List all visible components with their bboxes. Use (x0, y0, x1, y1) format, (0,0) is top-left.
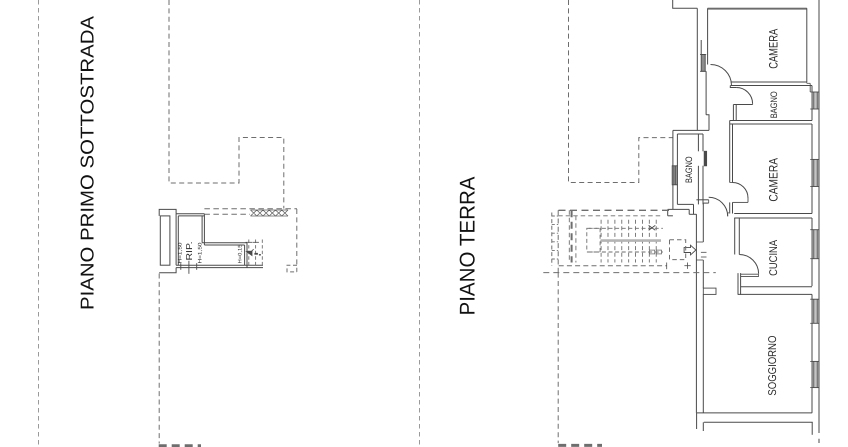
svg-text:BAGNO: BAGNO (683, 156, 694, 183)
svg-text:SOGGIORNO: SOGGIORNO (767, 335, 779, 395)
svg-text:CAMERA: CAMERA (767, 157, 781, 201)
svg-text:CUCINA: CUCINA (768, 239, 780, 275)
svg-text:PIANO PRIMO SOTTOSTRADA: PIANO PRIMO SOTTOSTRADA (77, 15, 98, 310)
svg-text:H=1,50: H=1,50 (177, 242, 183, 263)
svg-text:CAMERA: CAMERA (767, 28, 781, 69)
svg-text:H=0,15: H=0,15 (237, 244, 243, 263)
svg-text:RIP.: RIP. (184, 242, 194, 261)
svg-text:BAGNO: BAGNO (768, 91, 779, 118)
svg-text:H=1,50: H=1,50 (198, 242, 204, 263)
svg-text:PIANO TERRA: PIANO TERRA (456, 176, 480, 316)
